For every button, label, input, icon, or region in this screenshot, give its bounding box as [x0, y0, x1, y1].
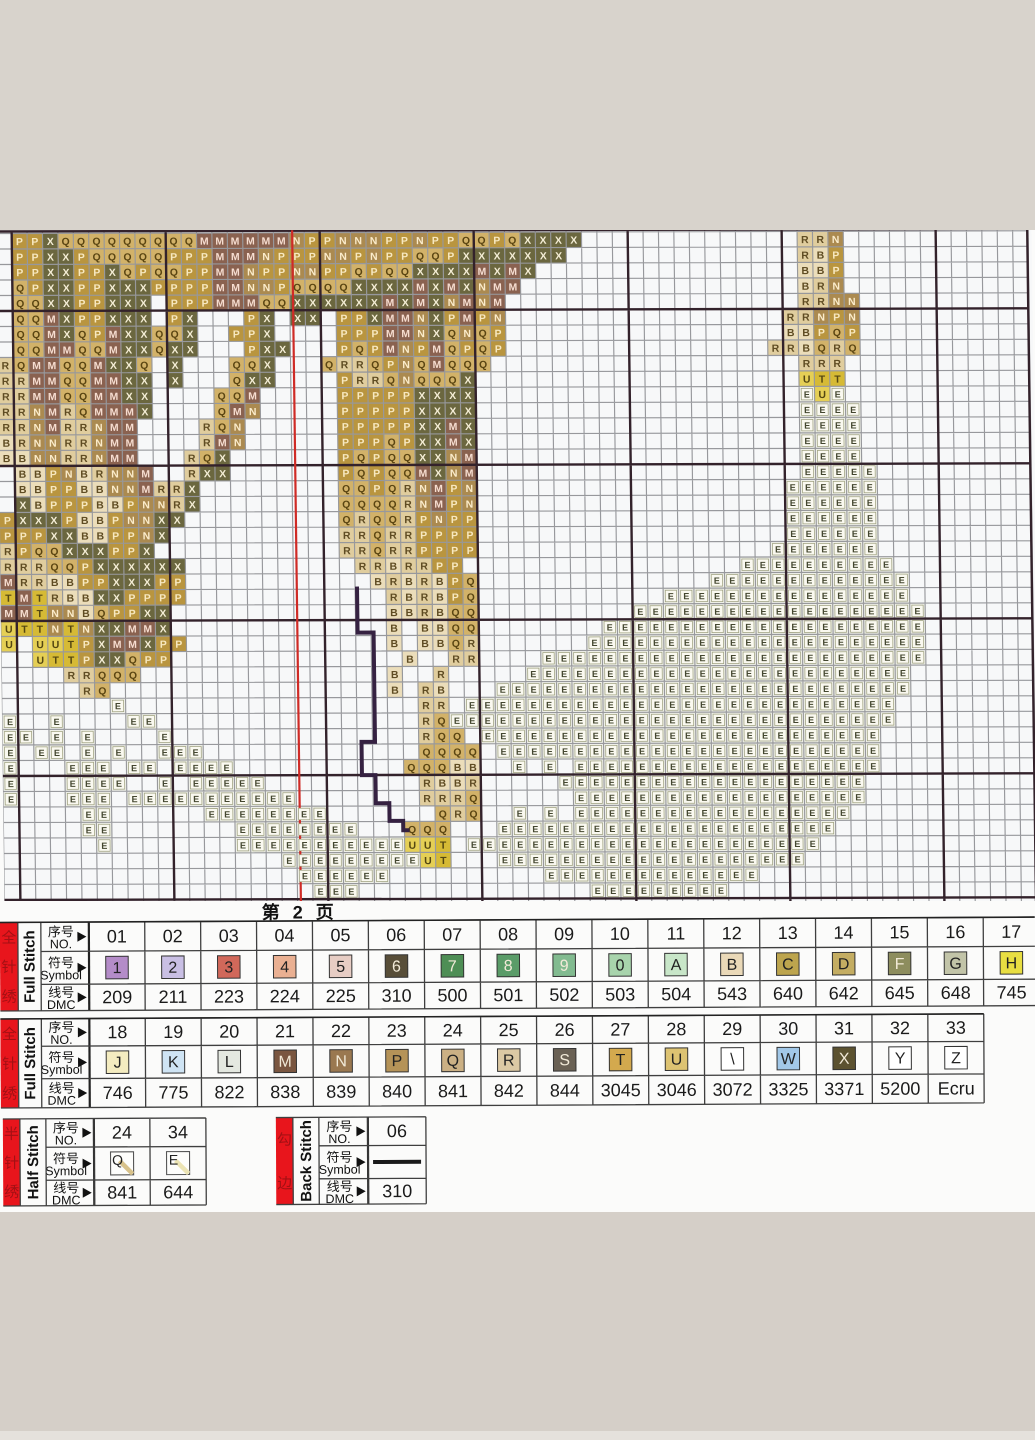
- svg-text:E: E: [686, 823, 692, 833]
- svg-text:E: E: [564, 870, 570, 880]
- svg-text:M: M: [231, 298, 240, 309]
- svg-text:P: P: [186, 267, 193, 278]
- svg-text:E: E: [777, 668, 783, 678]
- svg-text:P: P: [78, 252, 85, 263]
- svg-text:B: B: [817, 250, 825, 261]
- svg-text:X: X: [159, 562, 166, 573]
- svg-text:648: 648: [941, 983, 971, 1003]
- svg-text:E: E: [85, 778, 91, 788]
- svg-text:Q: Q: [78, 345, 86, 356]
- svg-text:E: E: [870, 745, 876, 755]
- svg-text:Q: Q: [79, 391, 87, 402]
- svg-text:E: E: [669, 684, 675, 694]
- svg-text:Q: Q: [112, 1152, 123, 1168]
- svg-text:X: X: [418, 391, 425, 402]
- svg-text:E: E: [637, 606, 643, 616]
- svg-text:B: B: [469, 762, 477, 773]
- svg-text:N: N: [33, 407, 41, 418]
- svg-text:775: 775: [158, 1083, 188, 1103]
- svg-text:Q: Q: [371, 360, 379, 371]
- svg-text:P: P: [160, 655, 167, 666]
- svg-text:14: 14: [833, 923, 853, 943]
- svg-text:Q: Q: [448, 359, 456, 370]
- svg-text:E: E: [822, 590, 828, 600]
- svg-text:N: N: [293, 236, 301, 247]
- svg-text:P: P: [129, 608, 136, 619]
- svg-text:X: X: [294, 314, 301, 325]
- svg-text:M: M: [48, 407, 57, 418]
- svg-text:E: E: [790, 544, 796, 554]
- svg-text:E: E: [715, 668, 721, 678]
- svg-text:B: B: [801, 266, 809, 277]
- svg-text:E: E: [638, 699, 644, 709]
- svg-text:E: E: [86, 825, 92, 835]
- svg-text:P: P: [233, 329, 240, 340]
- svg-text:E: E: [670, 730, 676, 740]
- svg-text:P: P: [451, 561, 458, 572]
- svg-text:X: X: [125, 314, 132, 325]
- svg-text:E: E: [762, 715, 768, 725]
- svg-text:P: P: [4, 531, 11, 542]
- svg-text:X: X: [419, 437, 426, 448]
- svg-text:E: E: [855, 745, 861, 755]
- svg-text:E: E: [594, 870, 600, 880]
- svg-text:E: E: [286, 809, 292, 819]
- svg-text:Q: Q: [467, 623, 475, 634]
- svg-text:840: 840: [382, 1081, 412, 1101]
- svg-text:E: E: [869, 683, 875, 693]
- svg-text:P: P: [495, 344, 502, 355]
- svg-text:E: E: [625, 870, 631, 880]
- svg-text:E: E: [702, 823, 708, 833]
- svg-text:N: N: [402, 375, 410, 386]
- svg-text:E: E: [656, 839, 662, 849]
- svg-text:P: P: [341, 391, 348, 402]
- svg-text:P: P: [372, 391, 379, 402]
- svg-text:R: R: [356, 375, 364, 386]
- svg-text:E: E: [747, 792, 753, 802]
- svg-text:M: M: [94, 407, 103, 418]
- svg-text:M: M: [128, 639, 137, 650]
- svg-text:E: E: [730, 668, 736, 678]
- svg-text:P: P: [373, 422, 380, 433]
- svg-text:Q: Q: [339, 282, 347, 293]
- svg-text:Q: Q: [32, 314, 40, 325]
- svg-text:B: B: [437, 685, 445, 696]
- svg-text:T: T: [21, 624, 28, 635]
- svg-text:F: F: [895, 956, 905, 973]
- svg-text:E: E: [548, 855, 554, 865]
- svg-text:E: E: [577, 700, 583, 710]
- svg-text:R: R: [2, 392, 10, 403]
- svg-text:Q: Q: [32, 330, 40, 341]
- svg-text:P: P: [373, 484, 380, 495]
- svg-text:M: M: [47, 345, 56, 356]
- svg-text:Q: Q: [92, 236, 100, 247]
- svg-text:E: E: [760, 606, 766, 616]
- svg-text:E: E: [147, 794, 153, 804]
- svg-text:M: M: [32, 361, 41, 372]
- svg-text:3072: 3072: [713, 1080, 753, 1100]
- svg-text:E: E: [270, 793, 276, 803]
- svg-text:E: E: [669, 715, 675, 725]
- svg-text:Q: Q: [357, 484, 365, 495]
- svg-text:E: E: [821, 559, 827, 569]
- svg-text:Q: Q: [479, 344, 487, 355]
- svg-text:M: M: [48, 392, 57, 403]
- svg-text:E: E: [729, 575, 735, 585]
- svg-text:E: E: [810, 838, 816, 848]
- svg-text:E: E: [732, 761, 738, 771]
- svg-text:U: U: [5, 640, 13, 651]
- svg-text:E: E: [624, 808, 630, 818]
- svg-text:E: E: [610, 870, 616, 880]
- svg-text:E: E: [807, 606, 813, 616]
- svg-text:Q: Q: [79, 376, 87, 387]
- svg-text:500: 500: [437, 985, 467, 1005]
- svg-text:E: E: [609, 823, 615, 833]
- svg-text:E: E: [717, 808, 723, 818]
- svg-text:边: 边: [277, 1175, 292, 1192]
- svg-text:E: E: [561, 700, 567, 710]
- svg-text:E: E: [101, 825, 107, 835]
- svg-text:Q: Q: [98, 686, 106, 697]
- svg-text:E: E: [684, 684, 690, 694]
- svg-text:E: E: [779, 823, 785, 833]
- svg-text:E: E: [378, 840, 384, 850]
- svg-text:M: M: [277, 236, 286, 247]
- svg-text:E: E: [746, 715, 752, 725]
- svg-text:Q: Q: [357, 468, 365, 479]
- svg-text:P: P: [404, 437, 411, 448]
- svg-text:N: N: [34, 438, 42, 449]
- svg-text:E: E: [608, 746, 614, 756]
- svg-text:E: E: [899, 621, 905, 631]
- svg-text:E: E: [224, 778, 230, 788]
- svg-text:E: E: [624, 792, 630, 802]
- svg-text:R: R: [36, 578, 44, 589]
- svg-text:Q: Q: [50, 547, 58, 558]
- svg-text:Q: Q: [467, 607, 475, 618]
- svg-text:U: U: [671, 1052, 683, 1069]
- svg-text:E: E: [592, 715, 598, 725]
- svg-text:E: E: [714, 622, 720, 632]
- svg-text:E: E: [563, 855, 569, 865]
- svg-text:E: E: [239, 809, 245, 819]
- svg-text:P: P: [342, 406, 349, 417]
- svg-text:X: X: [125, 345, 132, 356]
- svg-text:E: E: [316, 809, 322, 819]
- svg-text:R: R: [18, 407, 26, 418]
- svg-text:X: X: [159, 608, 166, 619]
- svg-text:27: 27: [610, 1020, 630, 1040]
- svg-text:B: B: [406, 608, 414, 619]
- svg-text:Q: Q: [139, 236, 147, 247]
- svg-text:X: X: [98, 593, 105, 604]
- svg-text:M: M: [200, 236, 209, 247]
- svg-text:E: E: [317, 840, 323, 850]
- svg-text:Q: Q: [452, 638, 460, 649]
- svg-text:X: X: [419, 453, 426, 464]
- svg-text:E: E: [333, 871, 339, 881]
- svg-text:E: E: [701, 792, 707, 802]
- svg-text:E: E: [317, 855, 323, 865]
- svg-text:E: E: [670, 746, 676, 756]
- svg-text:2: 2: [168, 960, 177, 977]
- svg-text:E: E: [591, 638, 597, 648]
- svg-text:X: X: [187, 345, 194, 356]
- svg-text:E: E: [684, 637, 690, 647]
- svg-text:E: E: [819, 405, 825, 415]
- svg-text:X: X: [402, 298, 409, 309]
- svg-text:T: T: [37, 624, 44, 635]
- svg-text:E: E: [760, 575, 766, 585]
- svg-text:N: N: [817, 312, 825, 323]
- svg-text:P: P: [93, 267, 100, 278]
- svg-text:N: N: [127, 515, 135, 526]
- svg-text:P: P: [66, 500, 73, 511]
- svg-text:R: R: [2, 407, 10, 418]
- svg-text:E: E: [852, 513, 858, 523]
- svg-text:B: B: [390, 623, 398, 634]
- svg-text:Q: Q: [342, 515, 350, 526]
- svg-text:5: 5: [336, 959, 345, 976]
- svg-text:842: 842: [494, 1081, 524, 1101]
- svg-text:P: P: [451, 515, 458, 526]
- svg-text:R: R: [358, 530, 366, 541]
- svg-text:X: X: [48, 299, 55, 310]
- svg-text:E: E: [485, 715, 491, 725]
- svg-text:X: X: [449, 391, 456, 402]
- svg-text:E: E: [578, 824, 584, 834]
- svg-text:E: E: [838, 652, 844, 662]
- svg-text:E: E: [792, 668, 798, 678]
- svg-text:E: E: [594, 808, 600, 818]
- svg-text:R: R: [421, 608, 429, 619]
- svg-text:E: E: [883, 590, 889, 600]
- svg-text:Q: Q: [108, 236, 116, 247]
- svg-text:M: M: [109, 345, 118, 356]
- svg-text:E: E: [883, 575, 889, 585]
- svg-text:B: B: [787, 328, 795, 339]
- svg-text:B: B: [439, 778, 447, 789]
- svg-text:E: E: [702, 870, 708, 880]
- svg-text:E: E: [807, 668, 813, 678]
- svg-text:R: R: [801, 250, 809, 261]
- svg-text:Q: Q: [403, 453, 411, 464]
- svg-text:E: E: [900, 652, 906, 662]
- svg-text:E: E: [671, 808, 677, 818]
- svg-text:M: M: [215, 252, 224, 263]
- svg-text:N: N: [370, 251, 378, 262]
- svg-text:10: 10: [610, 924, 630, 944]
- svg-text:Q: Q: [98, 670, 106, 681]
- svg-text:E: E: [500, 715, 506, 725]
- svg-text:P: P: [452, 592, 459, 603]
- svg-text:E: E: [653, 622, 659, 632]
- svg-text:E: E: [732, 823, 738, 833]
- svg-text:E: E: [870, 714, 876, 724]
- svg-text:Q: Q: [451, 607, 459, 618]
- svg-text:E: E: [686, 839, 692, 849]
- svg-text:X: X: [109, 298, 116, 309]
- svg-text:E: E: [683, 606, 689, 616]
- svg-text:P: P: [170, 252, 177, 263]
- svg-text:N: N: [448, 298, 456, 309]
- svg-text:E: E: [592, 653, 598, 663]
- svg-text:P: P: [355, 251, 362, 262]
- svg-text:P: P: [263, 267, 270, 278]
- svg-text:E: E: [868, 606, 874, 616]
- svg-text:P: P: [155, 283, 162, 294]
- svg-text:E: E: [794, 792, 800, 802]
- svg-text:Q: Q: [218, 391, 226, 402]
- svg-text:Q: Q: [93, 252, 101, 263]
- svg-text:R: R: [18, 438, 26, 449]
- svg-text:Q: Q: [171, 329, 179, 340]
- svg-text:15: 15: [889, 922, 909, 942]
- svg-text:P: P: [82, 562, 89, 573]
- svg-text:Q: Q: [416, 251, 424, 262]
- svg-text:E: E: [577, 746, 583, 756]
- svg-text:E: E: [193, 778, 199, 788]
- svg-text:N: N: [142, 515, 150, 526]
- svg-text:E: E: [671, 854, 677, 864]
- svg-text:X: X: [113, 562, 120, 573]
- svg-text:X: X: [144, 608, 151, 619]
- svg-text:B: B: [802, 328, 810, 339]
- svg-text:E: E: [332, 824, 338, 834]
- svg-text:Q: Q: [233, 391, 241, 402]
- svg-text:R: R: [80, 422, 88, 433]
- svg-text:E: E: [823, 714, 829, 724]
- svg-text:E: E: [748, 808, 754, 818]
- svg-text:211: 211: [159, 987, 188, 1007]
- svg-text:E: E: [593, 731, 599, 741]
- svg-text:E: E: [653, 606, 659, 616]
- svg-text:R: R: [157, 484, 165, 495]
- svg-text:E: E: [670, 761, 676, 771]
- svg-text:R: R: [423, 732, 431, 743]
- svg-text:E: E: [823, 683, 829, 693]
- svg-text:X: X: [63, 268, 70, 279]
- svg-text:P: P: [450, 484, 457, 495]
- svg-text:X: X: [113, 577, 120, 588]
- svg-text:R: R: [454, 809, 462, 820]
- svg-text:E: E: [517, 839, 523, 849]
- svg-text:E: E: [745, 591, 751, 601]
- svg-text:N: N: [126, 469, 134, 480]
- svg-text:E: E: [762, 761, 768, 771]
- svg-text:E: E: [548, 839, 554, 849]
- svg-text:E: E: [835, 435, 841, 445]
- svg-text:E: E: [855, 761, 861, 771]
- svg-text:M: M: [447, 282, 456, 293]
- svg-text:Half Stitch: Half Stitch: [25, 1125, 42, 1199]
- svg-text:E: E: [684, 653, 690, 663]
- svg-text:E: E: [744, 560, 750, 570]
- svg-text:E: E: [638, 637, 644, 647]
- svg-text:E: E: [7, 717, 13, 727]
- svg-text:Q: Q: [123, 252, 131, 263]
- svg-text:Q: Q: [233, 360, 241, 371]
- svg-text:E: E: [669, 668, 675, 678]
- svg-text:E: E: [502, 839, 508, 849]
- svg-text:P: P: [324, 267, 331, 278]
- svg-text:A: A: [671, 957, 682, 974]
- svg-text:E: E: [867, 513, 873, 523]
- svg-text:B: B: [18, 454, 26, 465]
- svg-text:T: T: [36, 593, 43, 604]
- svg-text:R: R: [802, 297, 810, 308]
- svg-text:E: E: [748, 839, 754, 849]
- svg-text:N: N: [52, 624, 60, 635]
- svg-text:T: T: [440, 856, 447, 867]
- svg-text:19: 19: [163, 1022, 183, 1042]
- svg-text:N: N: [82, 624, 90, 635]
- svg-text:E: E: [809, 761, 815, 771]
- svg-text:844: 844: [550, 1080, 580, 1100]
- svg-text:N: N: [478, 282, 486, 293]
- svg-text:P: P: [171, 314, 178, 325]
- svg-text:M: M: [247, 298, 256, 309]
- svg-text:X: X: [434, 437, 441, 448]
- svg-text:E: E: [671, 823, 677, 833]
- svg-text:E: E: [532, 824, 538, 834]
- svg-text:R: R: [389, 546, 397, 557]
- svg-text:E: E: [791, 575, 797, 585]
- svg-text:B: B: [436, 608, 444, 619]
- svg-text:E: E: [640, 792, 646, 802]
- svg-text:X: X: [140, 329, 147, 340]
- svg-text:Q: Q: [97, 608, 105, 619]
- svg-text:E: E: [192, 747, 198, 757]
- svg-text:M: M: [94, 376, 103, 387]
- svg-text:P: P: [201, 252, 208, 263]
- svg-text:E: E: [835, 420, 841, 430]
- svg-text:E: E: [764, 854, 770, 864]
- svg-text:E: E: [884, 637, 890, 647]
- svg-text:E: E: [807, 621, 813, 631]
- svg-text:X: X: [264, 360, 271, 371]
- svg-text:E: E: [685, 730, 691, 740]
- svg-text:E: E: [852, 544, 858, 554]
- svg-text:E: E: [745, 606, 751, 616]
- svg-text:B: B: [67, 593, 75, 604]
- svg-text:3045: 3045: [601, 1080, 641, 1100]
- svg-text:E: E: [240, 840, 246, 850]
- svg-text:N: N: [111, 484, 119, 495]
- svg-text:E: E: [654, 684, 660, 694]
- svg-text:E: E: [531, 715, 537, 725]
- svg-text:E: E: [85, 809, 91, 819]
- svg-text:N: N: [49, 454, 57, 465]
- svg-text:M: M: [432, 360, 441, 371]
- svg-text:E: E: [577, 715, 583, 725]
- svg-text:P: P: [293, 252, 300, 263]
- svg-text:16: 16: [945, 922, 965, 942]
- svg-text:E: E: [577, 731, 583, 741]
- svg-text:05: 05: [330, 925, 350, 945]
- svg-text:E: E: [778, 777, 784, 787]
- svg-text:E: E: [500, 746, 506, 756]
- svg-text:E: E: [824, 776, 830, 786]
- svg-text:E: E: [850, 420, 856, 430]
- svg-text:E: E: [224, 794, 230, 804]
- svg-text:B: B: [454, 778, 462, 789]
- svg-text:E: E: [763, 808, 769, 818]
- svg-text:P: P: [171, 298, 178, 309]
